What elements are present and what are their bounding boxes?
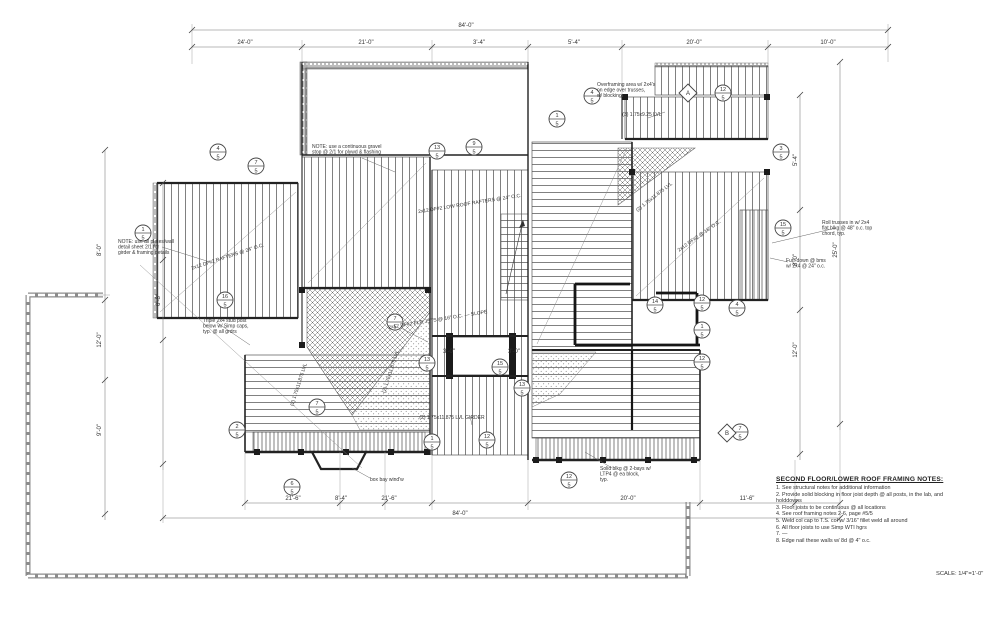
- bubble-detail-number: 7: [315, 401, 318, 407]
- dimension-label: 21'-6": [381, 496, 396, 502]
- bubble-sheet-number: 5: [735, 311, 738, 317]
- bubble-sheet-number: 5: [498, 370, 501, 376]
- detail-bubble: 135: [419, 355, 435, 372]
- bubble-sheet-number: 5: [555, 122, 558, 128]
- dimension-label: 9'-0": [97, 424, 103, 436]
- bubble-sheet-number: 5: [235, 433, 238, 439]
- note-item: 1. See structural notes for additional i…: [776, 485, 948, 492]
- bubble-detail-number: 16: [222, 294, 228, 300]
- scale-label: SCALE: 1/4"=1'-0": [936, 571, 983, 577]
- detail-bubble: 25: [229, 422, 245, 439]
- bubble-sheet-number: 5: [700, 333, 703, 339]
- bubble-detail-number: 12: [699, 356, 705, 362]
- dimension-label: 5'-4": [793, 154, 799, 166]
- bubble-sheet-number: 5: [700, 365, 703, 371]
- dimension-label: 10'-0": [820, 40, 835, 46]
- bubble-sheet-number: 5: [254, 169, 257, 175]
- bubble-detail-number: 13: [519, 382, 525, 388]
- bubble-detail-number: 12: [484, 434, 490, 440]
- stair: [501, 214, 528, 300]
- bubble-detail-number: 4: [216, 146, 219, 152]
- bubble-detail-number: 13: [434, 145, 440, 151]
- dimension-label: 21'-6": [285, 496, 300, 502]
- detail-bubble: 15: [549, 111, 565, 128]
- bubble-sheet-number: 5: [472, 150, 475, 156]
- bubble-detail-number: 3: [779, 146, 782, 152]
- bubble-sheet-number: 5: [653, 308, 656, 314]
- detail-bubble: 155: [492, 359, 508, 376]
- dimension-label: 11'-6": [740, 496, 755, 502]
- bubble-detail-number: 2: [235, 424, 238, 430]
- bay-window: [312, 452, 366, 469]
- detail-bubble: 45: [210, 144, 226, 161]
- detail-bubble: 15: [424, 434, 440, 451]
- bubble-detail-number: 4: [590, 90, 593, 96]
- detail-bubble: 15: [694, 322, 710, 339]
- joist-area-top-right: [625, 97, 768, 139]
- callout-text: NOTE: use a continuous gravelstop @ 2/1 …: [312, 144, 381, 156]
- detail-bubble: 95: [466, 139, 482, 156]
- bubble-detail-number: 15: [780, 222, 786, 228]
- bubble-detail-number: 1: [700, 324, 703, 330]
- note-item: 2. Provide solid blocking in floor joist…: [776, 492, 948, 505]
- detail-bubble: 155: [775, 220, 791, 237]
- bubble-sheet-number: 5: [520, 391, 523, 397]
- bubble-sheet-number: 5: [738, 435, 741, 441]
- joist-area-top-right-upper: [655, 66, 768, 95]
- bubble-sheet-number: 5: [315, 410, 318, 416]
- bubble-detail-number: 14: [652, 299, 658, 305]
- rim-strip-bottom-left: [253, 432, 425, 452]
- bubble-sheet-number: 5: [700, 306, 703, 312]
- dimension-label: 3'-4": [473, 40, 485, 46]
- bubble-sheet-number: 5: [216, 155, 219, 161]
- dimension-label: 12'-0": [97, 332, 103, 347]
- dimension-label: 24'-0": [237, 40, 252, 46]
- bubble-detail-number: 6: [290, 481, 293, 487]
- callout-text: Roll trusses in w/ 2x4flat blkg @ 48" o.…: [822, 220, 872, 237]
- diamond-label: A: [686, 91, 690, 97]
- bubble-sheet-number: 5: [435, 154, 438, 160]
- grid-diamond: B: [718, 424, 736, 442]
- rim-strip-bottom-right: [536, 438, 694, 460]
- detail-bubble: 125: [694, 295, 710, 312]
- detail-bubble: 75: [309, 399, 325, 416]
- joist-area-right-wing-dense: [740, 210, 768, 300]
- detail-bubble: 65: [284, 479, 300, 496]
- detail-bubble: 125: [479, 432, 495, 449]
- bubble-sheet-number: 5: [425, 366, 428, 372]
- bubble-detail-number: 7: [254, 160, 257, 166]
- detail-bubble: 125: [561, 472, 577, 489]
- detail-bubble: 125: [715, 85, 731, 102]
- note-item: 7. —: [776, 531, 948, 538]
- bubble-detail-number: 4: [735, 302, 738, 308]
- bubble-detail-number: 1: [555, 113, 558, 119]
- note-item: 6. All floor joists to use Simp WTI hgrs: [776, 525, 948, 532]
- bubble-detail-number: 15: [497, 361, 503, 367]
- callout-text: Furr down @ bmsw/ 2x4 @ 24" o.c.: [786, 258, 826, 270]
- bubble-sheet-number: 5: [223, 303, 226, 309]
- detail-bubble: 75: [248, 158, 264, 175]
- diamond-label: B: [725, 431, 729, 437]
- callout-text: (2) 1.75x11.875 LVL GIRDER: [419, 415, 485, 421]
- note-item: 4. See roof framing notes 2-6, page #5/5: [776, 511, 948, 518]
- detail-bubble: 125: [694, 354, 710, 371]
- framing-plan-sheet: 84'-0"24'-0"21'-0"3'-4"5'-4"20'-0"10'-0"…: [0, 0, 998, 638]
- note-item: 3. Floor joists to be continuous @ all l…: [776, 505, 948, 512]
- detail-bubble: 135: [514, 380, 530, 397]
- detail-bubble: 35: [773, 144, 789, 161]
- open-roof-area: [300, 62, 528, 155]
- note-item: 5. Weld col cap to T.S. col w/ 3/16" fil…: [776, 518, 948, 525]
- detail-bubble: 45: [729, 300, 745, 317]
- callout-text: (3) 1.75x9.25 LVL: [622, 112, 662, 118]
- dimension-label: 3'-0": [443, 349, 455, 355]
- bubble-sheet-number: 5: [290, 490, 293, 496]
- bubble-detail-number: 13: [424, 357, 430, 363]
- bubble-detail-number: 7: [738, 426, 741, 432]
- bubble-sheet-number: 5: [779, 155, 782, 161]
- bubble-detail-number: 9: [472, 141, 475, 147]
- notes-heading: SECOND FLOOR/LOWER ROOF FRAMING NOTES:: [776, 476, 948, 483]
- callout-text: Solid blkg @ 2-bays w/LTP4 @ ea block,ty…: [600, 466, 652, 483]
- dimension-label: 6'-8": [156, 294, 162, 306]
- bubble-detail-number: 12: [566, 474, 572, 480]
- bubble-detail-number: 7: [393, 316, 396, 322]
- callout-text: box bay wind'w: [370, 477, 404, 483]
- bubble-sheet-number: 5: [430, 445, 433, 451]
- bubble-sheet-number: 5: [485, 443, 488, 449]
- detail-bubble: 145: [647, 297, 663, 314]
- notes-block: SECOND FLOOR/LOWER ROOF FRAMING NOTES: 1…: [776, 476, 948, 544]
- note-item: 8. Edge nail these walls w/ 8d @ 4" o.c.: [776, 538, 948, 545]
- bubble-detail-number: 12: [720, 87, 726, 93]
- bubble-sheet-number: 5: [721, 96, 724, 102]
- dimension-label: 12'-0": [793, 342, 799, 357]
- callout-text: Triple 2x4 stud postbelow w/ Simp caps,t…: [203, 318, 249, 335]
- detail-bubble: 165: [217, 292, 233, 309]
- bubble-sheet-number: 5: [781, 231, 784, 237]
- bubble-sheet-number: 5: [590, 99, 593, 105]
- joist-area-center-left: [302, 157, 430, 288]
- dimension-label: 3'-0": [508, 349, 520, 355]
- bubble-detail-number: 12: [699, 297, 705, 303]
- dimension-label: 20'-0": [686, 40, 701, 46]
- dimension-label: 20'-0": [620, 496, 635, 502]
- dimension-label: 5'-4": [568, 40, 580, 46]
- bubble-detail-number: 1: [141, 227, 144, 233]
- dimension-label: 25'-0": [833, 242, 839, 257]
- dimension-label: 8'-0": [97, 244, 103, 256]
- dimension-label: 21'-0": [358, 40, 373, 46]
- dimension-label: 8'-4": [335, 496, 347, 502]
- dimension-label: 84'-0": [458, 23, 473, 29]
- detail-bubble: 135: [429, 143, 445, 160]
- bubble-sheet-number: 5: [567, 483, 570, 489]
- dimension-label: 84'-0": [452, 511, 467, 517]
- bubble-detail-number: 1: [430, 436, 433, 442]
